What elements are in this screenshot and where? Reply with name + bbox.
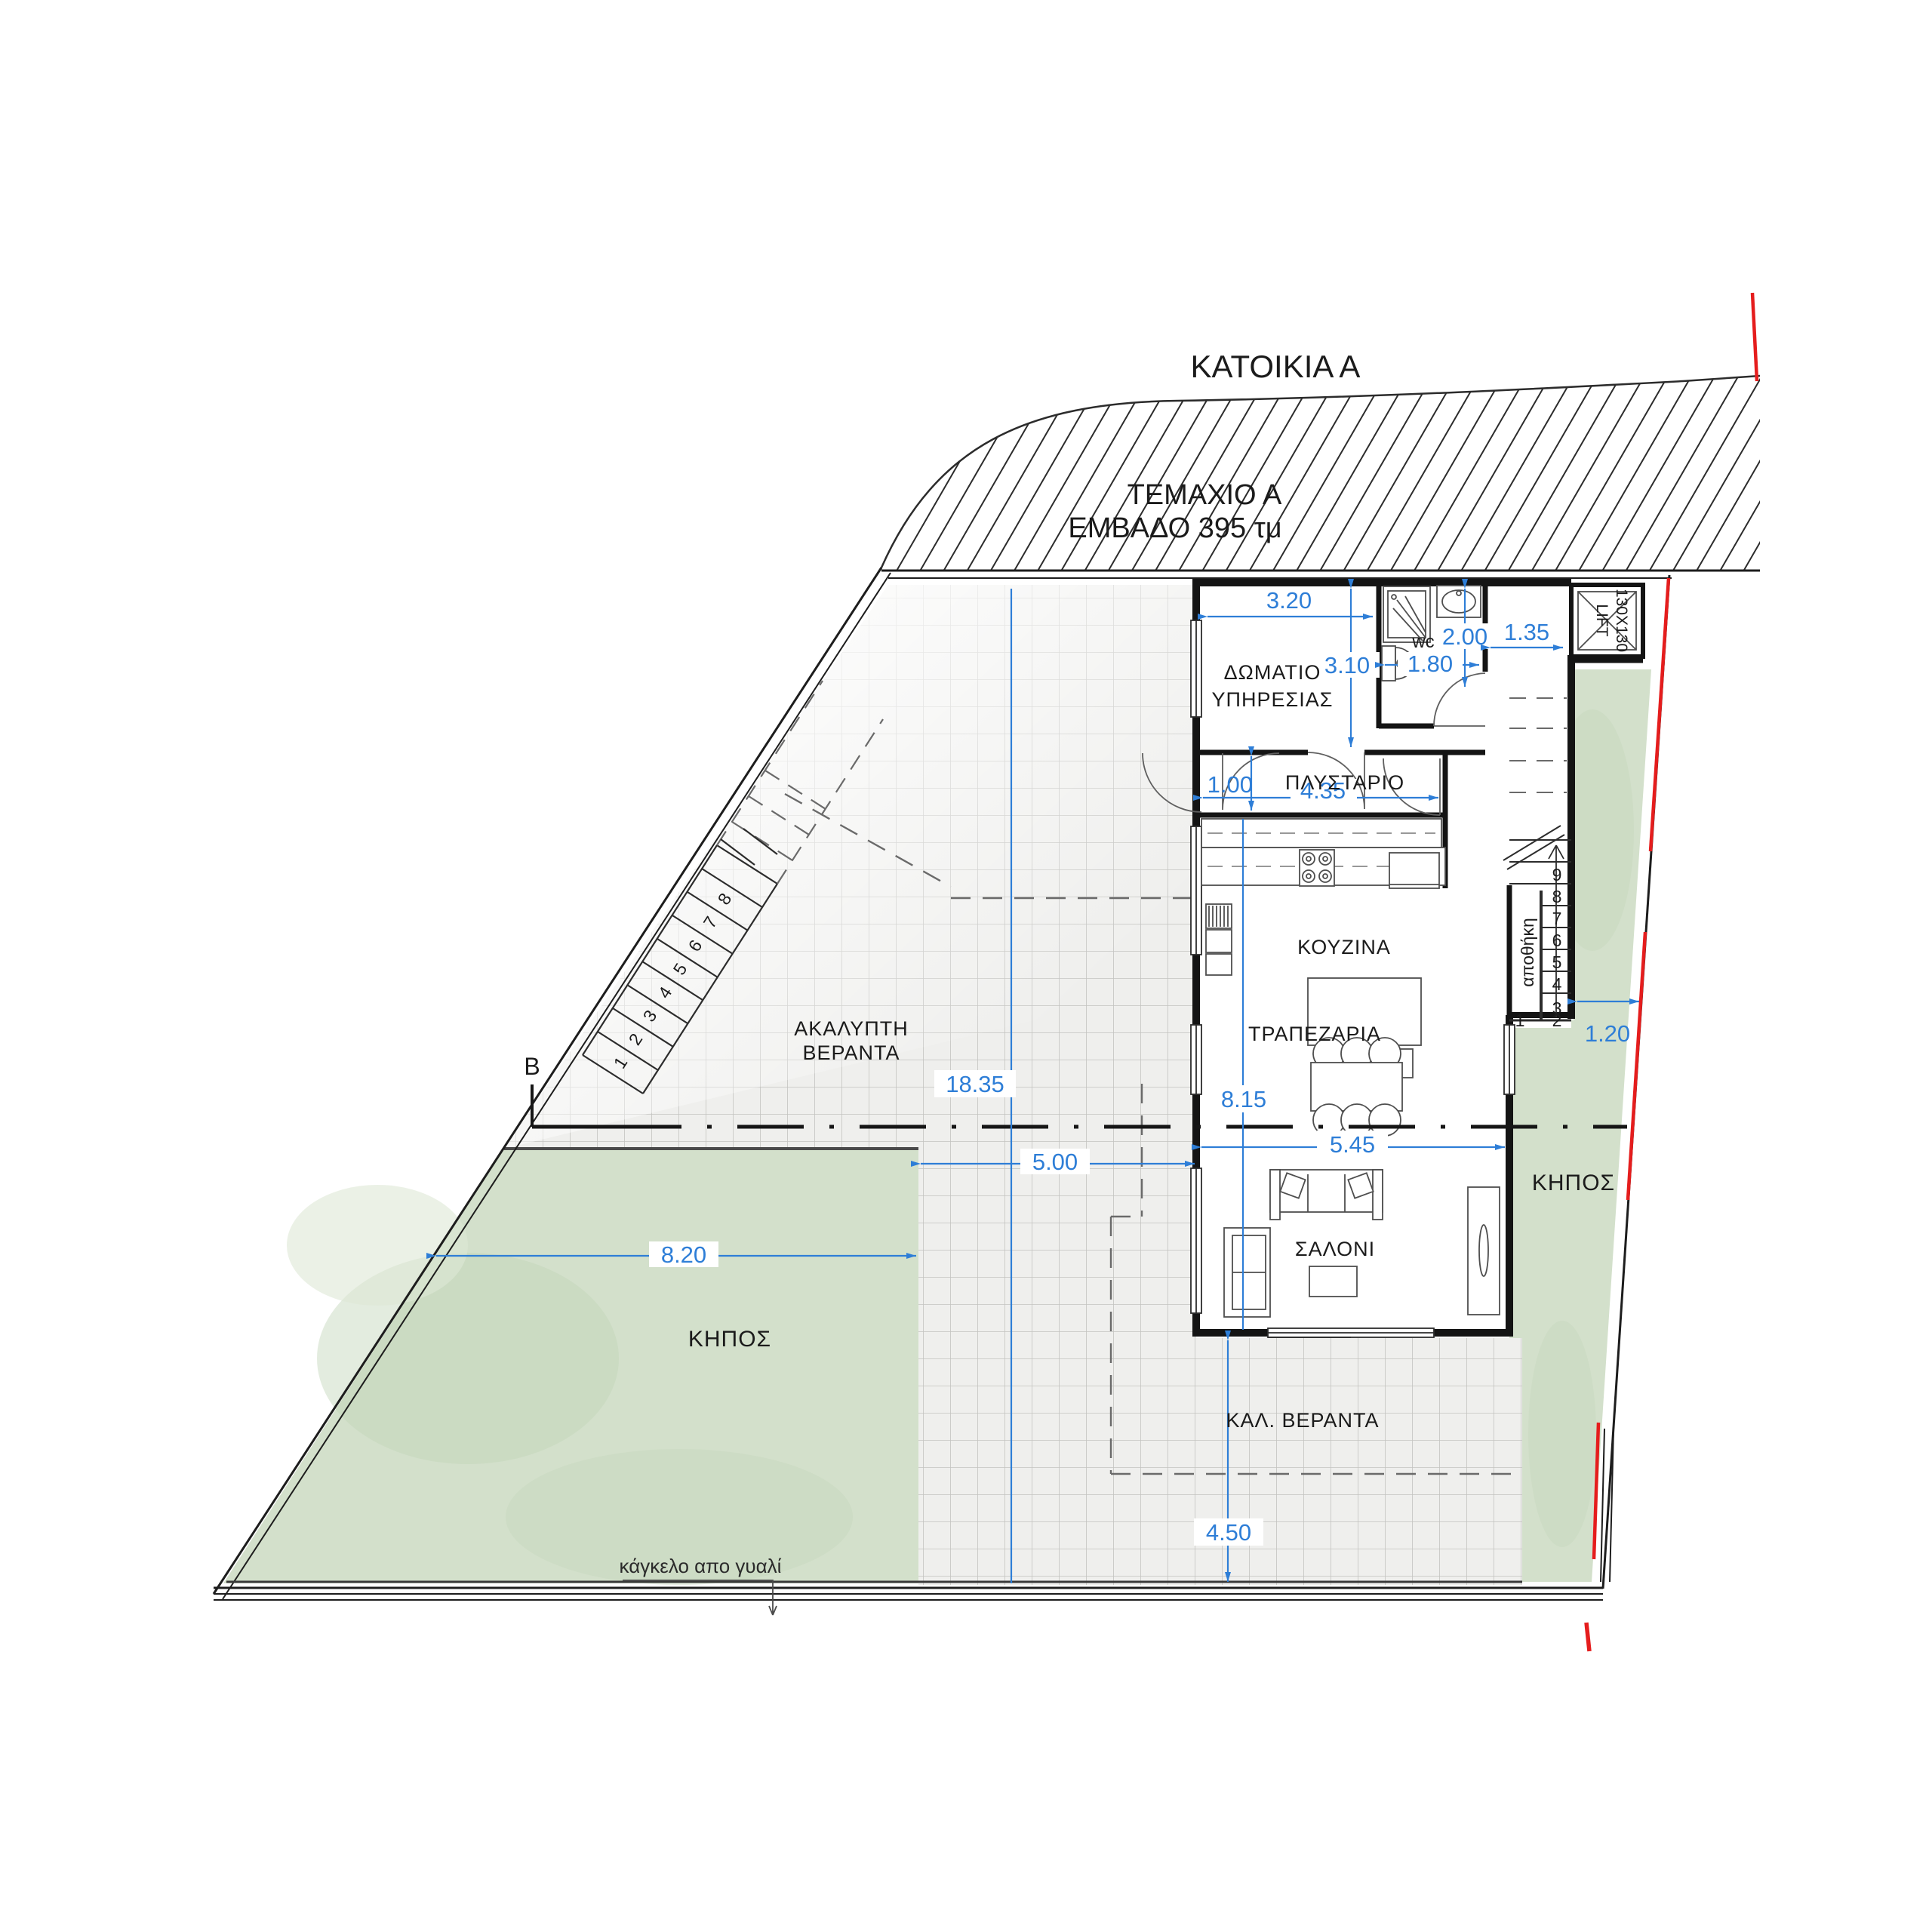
sliding-door-bottom bbox=[1268, 1328, 1434, 1337]
room-veranda-covered: ΚΑΛ. ΒΕΡΑΝΤΑ bbox=[1226, 1409, 1379, 1432]
dim-5-00: 5.00 bbox=[1032, 1149, 1078, 1175]
dim-1-20: 1.20 bbox=[1585, 1020, 1630, 1047]
railing-note: κάγκελο απο γυαλί bbox=[620, 1555, 782, 1615]
window-kitchen-left bbox=[1191, 826, 1201, 955]
coffee-table bbox=[1309, 1266, 1357, 1297]
lift-label: LIFT bbox=[1593, 604, 1611, 636]
dim-18-35: 18.35 bbox=[946, 1071, 1004, 1097]
railing-leader-line bbox=[623, 1580, 777, 1615]
int-step-3: 3 bbox=[1552, 998, 1562, 1018]
int-step-5: 5 bbox=[1552, 952, 1562, 972]
armchair bbox=[1224, 1228, 1270, 1317]
fridge bbox=[1389, 853, 1439, 888]
dim-3-10: 3.10 bbox=[1324, 652, 1370, 678]
floor-plan-page: 1 2 3 4 5 6 7 8 bbox=[0, 0, 1932, 1932]
sink bbox=[1437, 586, 1481, 617]
stove bbox=[1300, 850, 1334, 886]
road-hatch-band bbox=[881, 376, 1760, 571]
dim-5-45: 5.45 bbox=[1330, 1131, 1375, 1158]
sink-unit bbox=[1206, 904, 1232, 975]
int-step-4: 4 bbox=[1552, 974, 1562, 994]
dim-1-80: 1.80 bbox=[1407, 651, 1453, 677]
section-marker-b: B bbox=[524, 1053, 540, 1080]
room-service-1: ΔΩΜΑΤΙΟ bbox=[1224, 661, 1321, 684]
int-step-7: 7 bbox=[1552, 909, 1562, 928]
dim-4-50: 4.50 bbox=[1206, 1519, 1251, 1546]
garden-right-label: ΚΗΠΟΣ bbox=[1532, 1171, 1615, 1195]
room-wc: wc bbox=[1411, 632, 1434, 652]
railing-note-text: κάγκελο απο γυαλί bbox=[620, 1555, 782, 1577]
int-step-9: 9 bbox=[1552, 865, 1562, 884]
room-kitchen: ΚΟΥΖΙΝΑ bbox=[1297, 936, 1391, 958]
room-dining: ΤΡΑΠΕΖΑΡΙΑ bbox=[1248, 1023, 1381, 1045]
int-step-8: 8 bbox=[1552, 887, 1562, 906]
dim-3-20: 3.20 bbox=[1266, 587, 1312, 614]
page-title: ΚΑΤΟΙΚΙΑ Α bbox=[1191, 349, 1361, 384]
room-living: ΣΑΛΟΝΙ bbox=[1295, 1238, 1375, 1260]
dim-8-20: 8.20 bbox=[661, 1241, 706, 1268]
window-living-left bbox=[1191, 1168, 1201, 1313]
sofa bbox=[1270, 1170, 1383, 1220]
int-step-6: 6 bbox=[1552, 931, 1562, 950]
plot-label-line1: ΤΕΜΑΧΙΟ Α bbox=[1128, 479, 1282, 511]
plot-label-line2: ΕΜΒΑΔΟ 395 τμ bbox=[1068, 512, 1281, 544]
room-veranda-open-1: ΑΚΑΛΥΠΤΗ bbox=[794, 1017, 909, 1040]
dim-1-00: 1.00 bbox=[1207, 771, 1253, 798]
room-veranda-open-2: ΒΕΡΑΝΤΑ bbox=[802, 1041, 900, 1064]
dim-1-35: 1.35 bbox=[1504, 619, 1549, 645]
garden-left-label: ΚΗΠΟΣ bbox=[688, 1327, 771, 1352]
dining-furniture bbox=[1311, 1038, 1402, 1136]
window-service-left bbox=[1191, 620, 1201, 717]
room-laundry: ΠΛΥΣΤΑΡΙΟ bbox=[1285, 771, 1404, 794]
int-step-1: 1 bbox=[1515, 1011, 1525, 1030]
lift-size-label: 130X130 bbox=[1613, 589, 1630, 652]
room-service-2: ΥΠΗΡΕΣΙΑΣ bbox=[1212, 688, 1334, 711]
dim-2-00: 2.00 bbox=[1442, 623, 1487, 650]
floor-plan-drawing: 1 2 3 4 5 6 7 8 bbox=[0, 0, 1932, 1932]
window-dining-left bbox=[1191, 1025, 1201, 1094]
tv-cabinet bbox=[1468, 1187, 1500, 1315]
storage-label: αποθήκη bbox=[1518, 918, 1537, 987]
garden-left bbox=[223, 1149, 918, 1585]
dim-8-15: 8.15 bbox=[1221, 1086, 1266, 1112]
window-dining-right bbox=[1504, 1025, 1515, 1094]
